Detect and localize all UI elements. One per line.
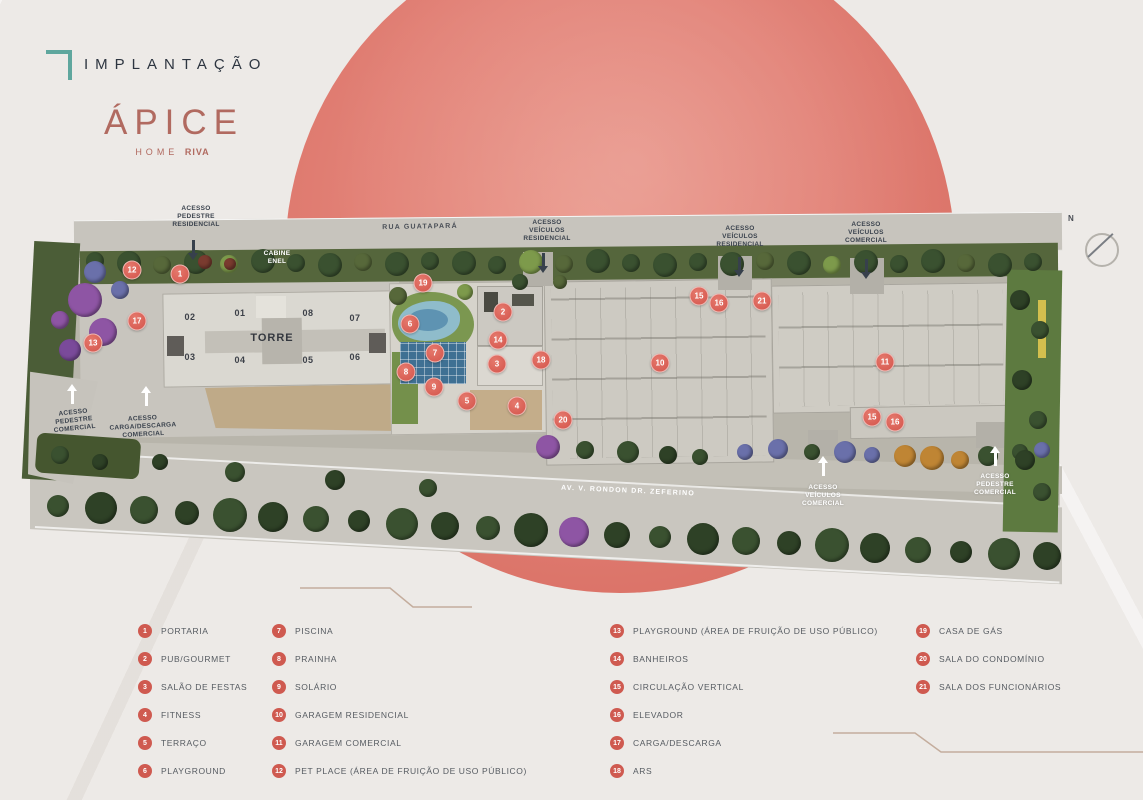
tree [175,501,199,525]
legend-item: 21 SALA DOS FUNCIONÁRIOS [916,673,1061,701]
map-marker: 4 [508,397,527,416]
legend-item: 7 PISCINA [272,617,527,645]
legend-item: 2 PUB/GOURMET [138,645,247,673]
tree [431,512,459,540]
legend-label: SALA DO CONDOMÍNIO [939,654,1045,664]
legend-label: CARGA/DESCARGA [633,738,722,748]
unit-number: 06 [349,352,360,362]
logo-home-text: HOME [135,147,178,157]
legend-column-4: 19 CASA DE GÁS 20 SALA DO CONDOMÍNIO 21 … [916,617,1061,701]
tree [213,498,247,532]
access-arrow-icon [990,446,1000,466]
map-marker: 2 [494,303,513,322]
map-marker: 17 [128,312,147,331]
unit-number: 01 [234,308,245,318]
map-marker: 8 [397,363,416,382]
tree [555,255,573,273]
unit-number: 02 [184,312,195,322]
tree [421,252,439,270]
tree [318,253,342,277]
map-marker: 1 [171,265,190,284]
access-label: ACESSO VEÍCULOS RESIDENCIAL [716,225,763,249]
legend-item: 17 CARGA/DESCARGA [610,729,878,757]
tree [649,526,671,548]
tree [860,533,890,563]
tree [348,510,370,532]
tree [92,454,108,470]
tree [488,256,506,274]
access-arrow-icon [861,259,871,279]
legend-number-badge: 18 [610,764,624,778]
tree [1034,442,1050,458]
map-marker: 21 [753,292,772,311]
unit-number: 03 [184,352,195,362]
tree [51,446,69,464]
map-marker: 16 [886,413,905,432]
map-marker: 7 [426,344,445,363]
tree [512,274,528,290]
legend-number-badge: 7 [272,624,286,638]
tree [692,449,708,465]
access-label: ACESSO PEDESTRE COMERCIAL [974,473,1016,497]
legend-item: 8 PRAINHA [272,645,527,673]
tree [894,445,916,467]
tree [756,252,774,270]
map-marker: 20 [554,411,573,430]
tree [1033,542,1061,570]
access-label: ACESSO VEÍCULOS COMERCIAL [845,221,887,245]
tree [153,256,171,274]
access-label: CABINE ENEL [264,250,291,266]
tree [617,441,639,463]
tree [51,311,69,329]
tree [130,496,158,524]
legend-column-1: 1 PORTARIA 2 PUB/GOURMET 3 SALÃO DE FEST… [138,617,247,785]
legend-item: 4 FITNESS [138,701,247,729]
map-marker: 11 [876,353,895,372]
legend-item: 19 CASA DE GÁS [916,617,1061,645]
map-marker: 15 [690,287,709,306]
map-marker: 13 [84,334,103,353]
legend-number-badge: 12 [272,764,286,778]
map-marker: 3 [488,355,507,374]
tree [687,523,719,555]
legend-label: GARAGEM RESIDENCIAL [295,710,409,720]
map-marker: 6 [401,315,420,334]
legend-number-badge: 20 [916,652,930,666]
legend-item: 1 PORTARIA [138,617,247,645]
legend-label: PRAINHA [295,654,337,664]
legend-number-badge: 14 [610,652,624,666]
access-arrow-icon [67,384,77,404]
tree [1010,290,1030,310]
legend-item: 10 GARAGEM RESIDENCIAL [272,701,527,729]
tree [386,508,418,540]
tree [553,275,567,289]
tree [476,516,500,540]
legend-number-badge: 10 [272,708,286,722]
legend-number-badge: 11 [272,736,286,750]
legend-item: 9 SOLÁRIO [272,673,527,701]
legend-item: 15 CIRCULAÇÃO VERTICAL [610,673,878,701]
tree [834,441,856,463]
tree [419,479,437,497]
tree [84,261,106,283]
tree [951,451,969,469]
legend-label: GARAGEM COMERCIAL [295,738,402,748]
tree [457,284,473,300]
legend-number-badge: 1 [138,624,152,638]
tree [198,255,212,269]
legend-number-badge: 19 [916,624,930,638]
page-title: IMPLANTAÇÃO [84,56,267,73]
unit-number: 04 [234,355,245,365]
tree [586,249,610,273]
legend-column-3: 13 PLAYGROUND (ÁREA DE FRUIÇÃO DE USO PÚ… [610,617,878,785]
tree [920,446,944,470]
tree [659,446,677,464]
tree [905,537,931,563]
logo-wordmark: ÁPICE [88,103,253,143]
legend-label: BANHEIROS [633,654,688,664]
access-arrow-icon [188,240,198,260]
tree [303,506,329,532]
logo-subtitle: HOME RIVA [88,147,253,157]
legend-item: 18 ARS [610,757,878,785]
legend-label: PISCINA [295,626,333,636]
legend-item: 5 TERRAÇO [138,729,247,757]
legend-item: 13 PLAYGROUND (ÁREA DE FRUIÇÃO DE USO PÚ… [610,617,878,645]
tree [389,287,407,305]
tree [68,283,102,317]
access-label: ACESSO CARGA/DESCARGA COMERCIAL [109,413,177,440]
map-marker: 18 [532,351,551,370]
tree [988,253,1012,277]
tree [864,447,880,463]
tree [921,249,945,273]
legend-label: FITNESS [161,710,201,720]
legend-label: PLAYGROUND [161,766,226,776]
legend-number-badge: 9 [272,680,286,694]
legend-number-badge: 5 [138,736,152,750]
legend-number-badge: 8 [272,652,286,666]
legend-number-badge: 6 [138,764,152,778]
tree [224,258,236,270]
map-marker: 9 [425,378,444,397]
tree [737,444,753,460]
legend-label: CASA DE GÁS [939,626,1003,636]
tree [47,495,69,517]
legend-number-badge: 3 [138,680,152,694]
tree [354,253,372,271]
map-marker: 5 [458,392,477,411]
tree [559,517,589,547]
legend-item: 20 SALA DO CONDOMÍNIO [916,645,1061,673]
compass-north-label: N [1068,214,1074,223]
tree [111,281,129,299]
tree [1015,450,1035,470]
legend-item: 12 PET PLACE (ÁREA DE FRUIÇÃO DE USO PÚB… [272,757,527,785]
map-marker: 12 [123,261,142,280]
legend-item: 16 ELEVADOR [610,701,878,729]
legend-label: SOLÁRIO [295,682,337,692]
access-arrow-icon [538,253,548,273]
tree [787,251,811,275]
access-arrow-icon [818,456,828,476]
tree [777,531,801,555]
tree [815,528,849,562]
apice-logo: ÁPICE HOME RIVA [88,103,253,157]
access-label: ACESSO VEÍCULOS COMERCIAL [802,484,844,508]
implantacao-page: IMPLANTAÇÃO ÁPICE HOME RIVA [0,0,1143,800]
tree [385,252,409,276]
legend-label: SALA DOS FUNCIONÁRIOS [939,682,1061,692]
tree [732,527,760,555]
tree [957,254,975,272]
access-arrow-icon [141,386,151,406]
map-marker: 14 [489,331,508,350]
map-marker: 10 [651,354,670,373]
tree [536,435,560,459]
legend-label: PORTARIA [161,626,208,636]
legend-label: PUB/GOURMET [161,654,231,664]
unit-number: 07 [349,313,360,323]
legend-label: PLAYGROUND (ÁREA DE FRUIÇÃO DE USO PÚBLI… [633,626,878,636]
tree [890,255,908,273]
tree [950,541,972,563]
tree [768,439,788,459]
legend-label: TERRAÇO [161,738,207,748]
tree [325,470,345,490]
unit-number: 05 [302,355,313,365]
tree [1029,411,1047,429]
legend-item: 11 GARAGEM COMERCIAL [272,729,527,757]
tree [152,454,168,470]
street-name: RUA GUATAPARÁ [382,223,458,231]
legend-number-badge: 15 [610,680,624,694]
access-label: ACESSO VEÍCULOS RESIDENCIAL [523,219,570,243]
legend-label: CIRCULAÇÃO VERTICAL [633,682,744,692]
legend-number-badge: 2 [138,652,152,666]
access-label: ACESSO PEDESTRE COMERCIAL [52,407,96,435]
legend-label: ARS [633,766,652,776]
legend-number-badge: 21 [916,680,930,694]
legend-label: PET PLACE (ÁREA DE FRUIÇÃO DE USO PÚBLIC… [295,766,527,776]
tree [604,522,630,548]
tree [622,254,640,272]
tower-label: TORRE [250,332,293,344]
map-marker: 15 [863,408,882,427]
tree [653,253,677,277]
unit-number: 08 [302,308,313,318]
legend-label: ELEVADOR [633,710,683,720]
tree [1012,370,1032,390]
tree [258,502,288,532]
legend-number-badge: 16 [610,708,624,722]
legend-item: 14 BANHEIROS [610,645,878,673]
compass-icon [1085,233,1119,267]
tree [225,462,245,482]
legend-number-badge: 4 [138,708,152,722]
tree [689,253,707,271]
legend-item: 6 PLAYGROUND [138,757,247,785]
legend-number-badge: 13 [610,624,624,638]
logo-riva-text: RIVA [185,147,210,157]
map-marker: 16 [710,294,729,313]
tree [85,492,117,524]
access-label: ACESSO PEDESTRE RESIDENCIAL [172,205,219,229]
tree [514,513,548,547]
corner-bracket-icon [46,50,72,80]
map-marker: 19 [414,274,433,293]
tree [1024,253,1042,271]
access-arrow-icon [734,257,744,277]
legend-column-2: 7 PISCINA 8 PRAINHA 9 SOLÁRIO 10 GARAGEM… [272,617,527,785]
tree [823,256,841,274]
tree [1031,321,1049,339]
tree [59,339,81,361]
tree [452,251,476,275]
tree [1033,483,1051,501]
tree [988,538,1020,570]
legend-number-badge: 17 [610,736,624,750]
tree [576,441,594,459]
legend-label: SALÃO DE FESTAS [161,682,247,692]
legend-item: 3 SALÃO DE FESTAS [138,673,247,701]
